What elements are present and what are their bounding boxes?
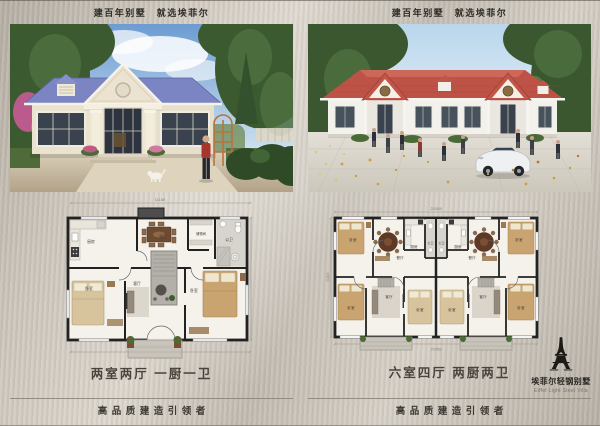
room-label-bedroom-right: 卧室 [190,288,198,293]
steps [90,154,156,163]
room-label-bedroom-tl-1: 卧室 [349,237,357,242]
tagline-left: 高品质建造引领者 [10,403,293,417]
room-label-bedroom-bl-2: 卧室 [517,305,525,310]
brand-name: 埃菲尔轻钢别墅 [528,376,594,387]
room-label-dining-2: 餐厅 [468,255,476,260]
house-illustration-right [308,24,591,192]
bathroom [216,219,245,266]
house-photo-right [308,24,591,192]
stair-core [151,251,177,305]
room-label-bedroom-left: 卧室 [85,286,93,291]
room-label-kitchen: 厨房 [87,239,95,244]
room-label-kitchen-1: 厨房 [410,244,418,249]
divider-right [308,398,591,399]
room-label-living-2: 客厅 [479,294,487,299]
white-fence [256,128,293,142]
living-furniture [126,287,149,317]
dim-top: 11169 [155,197,166,202]
dim-bottom: 22058 [430,347,442,352]
duplex-house [320,70,565,143]
floor-plan-right: 22058 22058 9283 卧室 餐厅 厨房 公卫 卧室 客厅 卧室 卧室… [326,202,544,354]
tagline-right: 高品质建造引领者 [308,403,591,417]
room-label-dining-1: 餐厅 [396,255,404,260]
entry-doors [104,108,142,154]
room-label-kitchen-2: 厨房 [454,244,462,249]
caption-left: 两室两厅 一厨一卫 [10,363,293,382]
slogan-left: 建百年别墅 就选埃菲尔 [10,5,293,21]
house [24,64,222,163]
brand-logo: 埃菲尔轻钢别墅 Eiffel Light Steel Villa [528,336,594,394]
dim-top: 22058 [430,206,442,211]
room-label-bedroom-mid-2: 卧室 [448,307,456,312]
room-label-bedroom-bl-1: 卧室 [347,305,355,310]
divider-left [10,398,293,399]
room-label-living-1: 客厅 [385,294,393,299]
roof-stub [138,208,164,218]
eiffel-tower-icon [547,336,575,374]
room-label-bedroom-mid-1: 卧室 [416,307,424,312]
room-label-storage: 储物间 [196,231,206,236]
room-label-living: 客厅 [133,281,141,286]
room-label-bath-2: 公卫 [438,241,444,245]
dim-side: 9283 [326,272,330,282]
house-photo-left [10,24,293,192]
floor-plan-left: 11169 11169 8969 [63,195,253,367]
slogan-right: 建百年别墅 就选埃菲尔 [308,5,591,21]
room-label-dining: 餐厅 [159,234,167,239]
room-label-bedroom-tl-2: 卧室 [515,237,523,242]
room-label-bath-1: 公卫 [427,241,433,245]
room-label-bath: 公卫 [225,237,233,242]
brand-name-en: Eiffel Light Steel Villa [528,388,594,394]
villa-poster: 建百年别墅 就选埃菲尔 建百年别墅 就选埃菲尔 [0,0,600,426]
house-illustration-left [10,24,293,192]
